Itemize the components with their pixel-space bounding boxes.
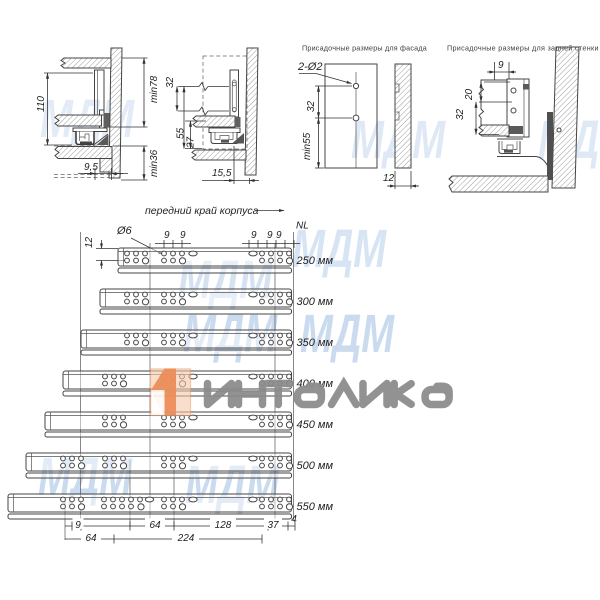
svg-text:4: 4 [291, 514, 297, 525]
svg-text:12: 12 [84, 236, 95, 248]
svg-text:12: 12 [383, 173, 395, 184]
svg-text:550 мм: 550 мм [297, 501, 334, 513]
svg-text:NL: NL [296, 221, 309, 232]
svg-text:27: 27 [186, 136, 197, 149]
svg-text:min78: min78 [149, 75, 160, 103]
svg-text:9: 9 [180, 230, 186, 241]
svg-text:9,5: 9,5 [84, 162, 98, 173]
svg-text:Присадочные размеры для фасада: Присадочные размеры для фасада [302, 44, 427, 53]
svg-text:9: 9 [276, 230, 282, 241]
svg-text:224: 224 [177, 533, 195, 544]
svg-text:500 мм: 500 мм [297, 460, 334, 472]
svg-text:32: 32 [455, 108, 466, 120]
svg-text:9: 9 [267, 230, 273, 241]
svg-text:9: 9 [498, 60, 504, 71]
svg-text:110: 110 [36, 96, 47, 112]
svg-text:32: 32 [165, 76, 176, 88]
svg-text:Ø6: Ø6 [116, 225, 133, 237]
svg-text:9: 9 [251, 230, 257, 241]
svg-text:450 мм: 450 мм [297, 419, 334, 431]
svg-text:передний край корпуса: передний край корпуса [145, 205, 259, 217]
svg-text:9: 9 [164, 230, 170, 241]
svg-text:37: 37 [267, 520, 279, 531]
svg-text:9: 9 [75, 520, 81, 531]
svg-text:15,5: 15,5 [212, 168, 232, 179]
svg-text:МДМ: МДМ [300, 304, 395, 365]
svg-text:min55: min55 [302, 132, 313, 160]
svg-text:64: 64 [85, 533, 97, 544]
svg-text:300 мм: 300 мм [297, 296, 334, 308]
svg-text:350 мм: 350 мм [297, 337, 334, 349]
svg-text:Присадочные размеры для задней: Присадочные размеры для задней стенки [447, 44, 599, 53]
svg-text:2-Ø2: 2-Ø2 [297, 61, 322, 73]
svg-text:32: 32 [306, 100, 317, 112]
svg-text:128: 128 [215, 520, 232, 531]
svg-text:20: 20 [464, 88, 475, 101]
svg-text:min36: min36 [149, 149, 160, 177]
svg-text:64: 64 [149, 520, 161, 531]
svg-text:250 мм: 250 мм [296, 255, 334, 267]
